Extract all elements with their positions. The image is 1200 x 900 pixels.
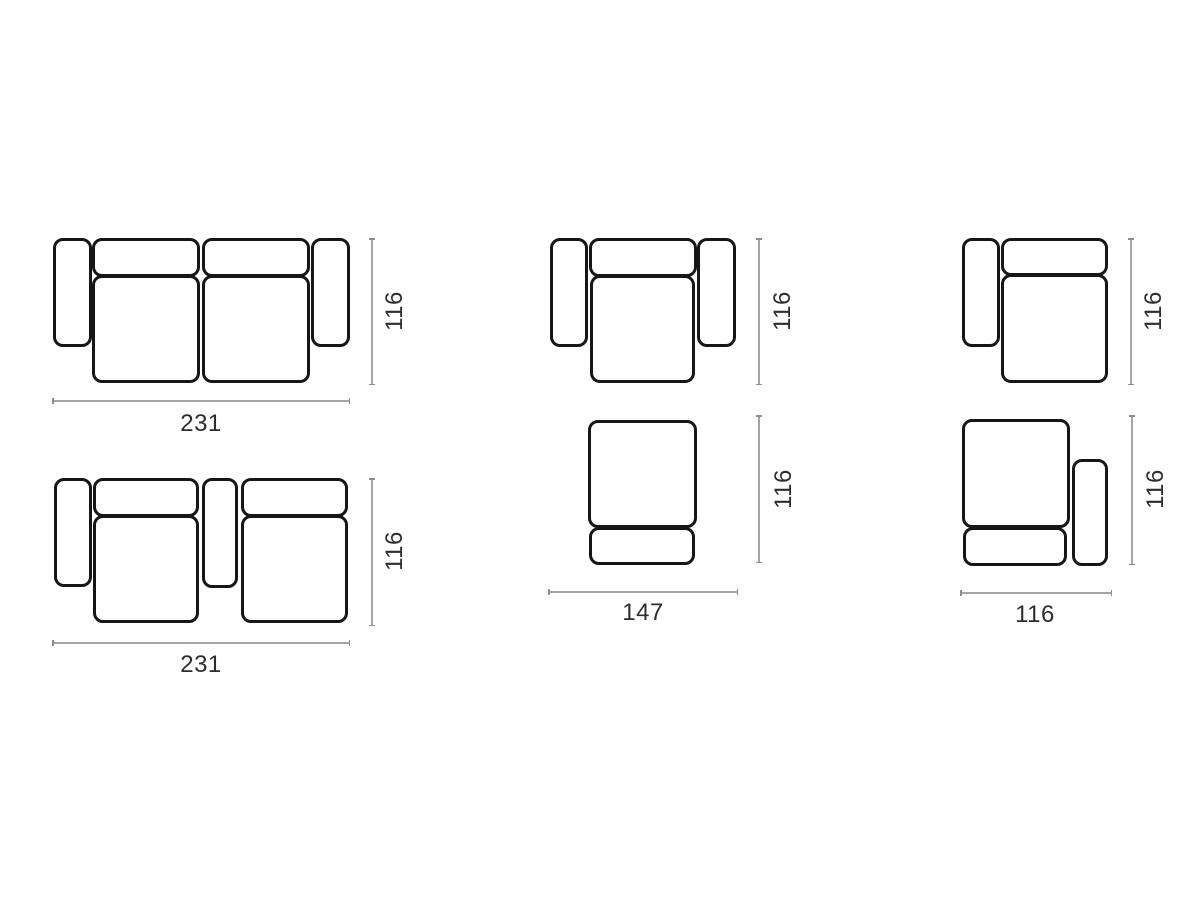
armrest-right [1072,459,1108,566]
height-dimension-label: 116 [1142,469,1170,509]
width-dimension-label: 116 [1015,601,1055,629]
width-dimension-line [960,592,1112,594]
figure-right-arm-module: 116 116 [0,0,1200,900]
seat-cushion [962,419,1070,528]
height-dimension-line [1131,415,1133,565]
backrest-section [963,527,1067,566]
sofa-dimension-diagram: 116 231 116 231 116 116 147 [0,0,1200,900]
